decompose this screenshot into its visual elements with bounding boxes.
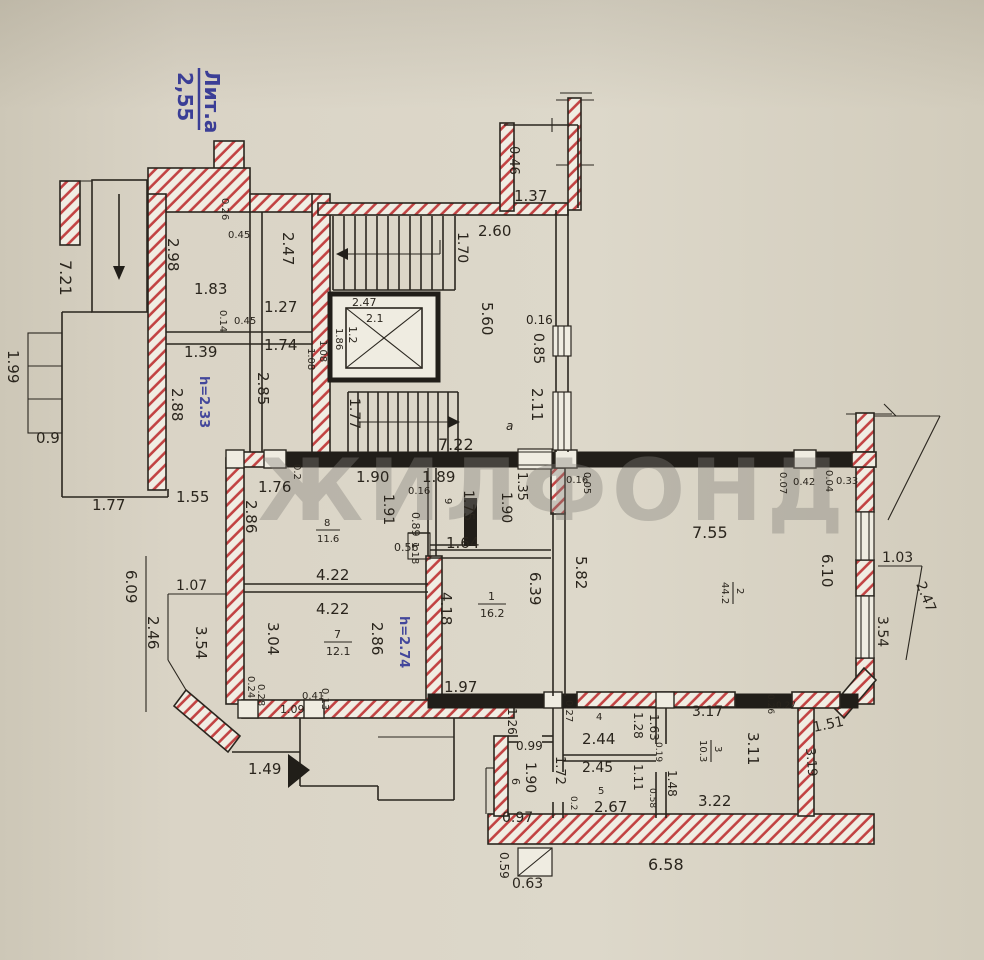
dim-label: 1.39 — [184, 343, 217, 361]
dim-label: 0.33 — [836, 476, 858, 487]
dim-label: 6.39 — [526, 572, 544, 605]
wall-room6-left — [494, 736, 508, 816]
dim-label: 1.03 — [882, 550, 913, 566]
dim-label: 0.07 — [777, 472, 788, 494]
dim-label: 2.86 — [242, 500, 260, 533]
dim-label: 2.86 — [368, 622, 386, 655]
dim-label: 1.28 — [631, 712, 645, 739]
dim-label: 0.63 — [512, 876, 543, 892]
dim-label: 3.19 — [802, 747, 819, 777]
dim-label: 1.77 — [92, 496, 125, 514]
dim-label: 1.55 — [176, 488, 209, 506]
dim-label: 1.86 — [333, 328, 344, 350]
window-right-1 — [856, 512, 874, 560]
dim-label: 1.64 — [446, 534, 479, 552]
dim-label: 1.07 — [176, 578, 207, 594]
dim-label: 0.85 — [530, 333, 546, 364]
liter-label: Лит.а — [200, 70, 224, 133]
dim-label: 1.26 — [505, 708, 519, 735]
liter-value: 2,55 — [173, 72, 197, 121]
window-right-2 — [856, 596, 874, 658]
dim-label: 1.76 — [258, 478, 291, 496]
dim-label: 0.59 — [497, 852, 511, 879]
dim-label: 2.1 — [366, 312, 384, 325]
dim-label: 0.2 — [568, 796, 578, 810]
dim-label: 0.9 — [36, 429, 60, 447]
height-note: h=2.74 — [396, 616, 411, 668]
room-number: 3 — [712, 746, 723, 752]
dim-label: 1.90 — [356, 468, 389, 486]
dim-label: 1.77 — [346, 398, 362, 429]
dim-label: 1.49 — [248, 760, 281, 778]
dim-label: 0.45 — [228, 230, 250, 241]
vent-shaft — [518, 848, 552, 876]
wall-right-stub — [856, 413, 874, 452]
dim-label: 2.98 — [164, 238, 182, 271]
dim-label: 4.18 — [437, 592, 455, 625]
watermark: ЖИЛФОНД — [258, 441, 849, 541]
dim-label: 1.37 — [514, 187, 547, 205]
room-letter: а — [506, 419, 513, 433]
dim-label: 0.13 — [319, 688, 330, 710]
dim-label: 1.74 — [264, 336, 297, 354]
room-number: 5 — [598, 786, 604, 797]
dim-label: 1.72 — [552, 756, 567, 785]
dim-label: 1.91 — [380, 494, 396, 525]
dim-label: 2.88 — [168, 388, 186, 421]
wall-upper-right — [568, 98, 581, 210]
dim-label: 3.54 — [874, 616, 890, 647]
room-number: 4 — [596, 712, 602, 723]
room-number: 6 — [509, 778, 522, 785]
dim-label: 0.89 — [409, 512, 422, 537]
room-number: 2 — [734, 588, 745, 594]
dim-label: 0.24 — [245, 676, 256, 698]
room-area: 44.2 — [719, 582, 730, 604]
dim-label: 0.46 — [506, 146, 521, 175]
dim-label: 2.60 — [478, 222, 511, 240]
room-number: 9 — [442, 498, 453, 504]
dim-label: 7.22 — [438, 435, 474, 454]
dim-label: 1.83 — [194, 280, 227, 298]
dim-label: 0.45 — [234, 316, 256, 327]
dim-label: 0.58 — [647, 788, 657, 808]
wall-right-2 — [856, 560, 874, 596]
wall-nw-top2 — [250, 194, 314, 212]
dim-label: 1.18 — [409, 542, 420, 564]
dim-label: 2.47 — [279, 232, 297, 265]
wall-bottom — [488, 814, 874, 844]
wall-right-1 — [856, 467, 874, 512]
dim-label: 1.99 — [4, 350, 22, 383]
dim-label: 1.09 — [280, 703, 305, 716]
room-area: 16.2 — [480, 607, 505, 620]
dim-label: 3.54 — [192, 626, 210, 659]
room-number: 1 — [488, 590, 495, 603]
dim-label: 1.2 — [346, 326, 359, 344]
dim-label: 5.82 — [572, 556, 590, 589]
floor-plan-scan: ЖИЛФОНД Лит.а 2,55 7.21 1.99 0.9 1.77 1.… — [0, 0, 984, 960]
dim-label: 0.16 — [526, 313, 553, 327]
room-area: 12.1 — [326, 645, 351, 658]
dim-label: 0.27 — [776, 701, 796, 711]
dim-label: 0.04 — [823, 470, 834, 492]
room-area: 11.6 — [317, 534, 339, 545]
dim-label: 0.19 — [653, 742, 663, 762]
dim-label: 3.22 — [698, 792, 731, 810]
dim-label: 7.21 — [56, 260, 75, 296]
room-number: 7 — [334, 628, 341, 641]
dim-label: 1.90 — [498, 492, 514, 523]
room-number: 8 — [324, 518, 330, 529]
dim-label: 0.26 — [765, 694, 775, 714]
wall-mid-left — [226, 458, 244, 704]
dim-label: 1.89 — [422, 468, 455, 486]
dim-label: 4.22 — [316, 566, 349, 584]
dim-label: 0.05 — [581, 472, 592, 494]
dim-label: 2.67 — [594, 798, 627, 816]
dim-label: 1.75 — [460, 490, 476, 521]
dim-label: 1.63 — [647, 714, 661, 741]
dim-label: 4.22 — [316, 600, 349, 618]
dim-label: 3.04 — [264, 622, 282, 655]
dim-label: 1.48 — [665, 770, 679, 797]
dim-label: 0.42 — [793, 477, 815, 488]
dim-label: 2.45 — [582, 760, 613, 776]
dim-label: 0.26 — [219, 198, 230, 220]
dim-label: 3.11 — [744, 732, 762, 765]
dim-label: 6.58 — [648, 855, 684, 874]
dim-label: 6.09 — [122, 570, 140, 603]
dim-label: 2.11 — [528, 388, 546, 421]
dim-label: 6.10 — [818, 554, 836, 587]
floor-plan-svg: ЖИЛФОНД Лит.а 2,55 7.21 1.99 0.9 1.77 1.… — [0, 0, 984, 960]
dim-label: 1.11 — [631, 764, 645, 791]
dim-label: 1.35 — [514, 472, 529, 501]
dim-label: 1.08 — [305, 348, 316, 370]
dim-label: 2.47 — [352, 296, 377, 309]
dim-label: 1.27 — [264, 298, 297, 316]
height-note: h=2.33 — [196, 376, 211, 428]
dim-label: 0.99 — [516, 739, 543, 753]
window-hall-1 — [553, 326, 571, 356]
dim-label: 2.46 — [144, 616, 162, 649]
dim-label: 7.55 — [692, 523, 728, 542]
wall-room1-left — [426, 556, 442, 700]
dim-label: 1.97 — [444, 678, 477, 696]
dim-label: 5.60 — [478, 302, 496, 335]
dim-label: 0.97 — [502, 810, 533, 826]
wall-nw-left — [148, 194, 166, 490]
dim-label: 3.17 — [692, 704, 723, 720]
dim-label: 1.70 — [454, 232, 470, 263]
dim-label: 0.27 — [563, 700, 574, 722]
dim-label: 0.16 — [408, 486, 430, 497]
room-area: 10.3 — [697, 740, 708, 762]
wall-far-left — [60, 181, 80, 245]
wall-stair-left — [312, 194, 330, 456]
dim-label: 0.2 — [291, 464, 302, 480]
dim-label: 2.44 — [582, 730, 615, 748]
dim-label: 2.85 — [254, 372, 272, 405]
dim-label: 1.90 — [522, 762, 538, 793]
dim-label: 0.14 — [217, 310, 228, 332]
dim-label: 1.08 — [317, 340, 328, 362]
dim-label: 0.28 — [255, 684, 266, 706]
